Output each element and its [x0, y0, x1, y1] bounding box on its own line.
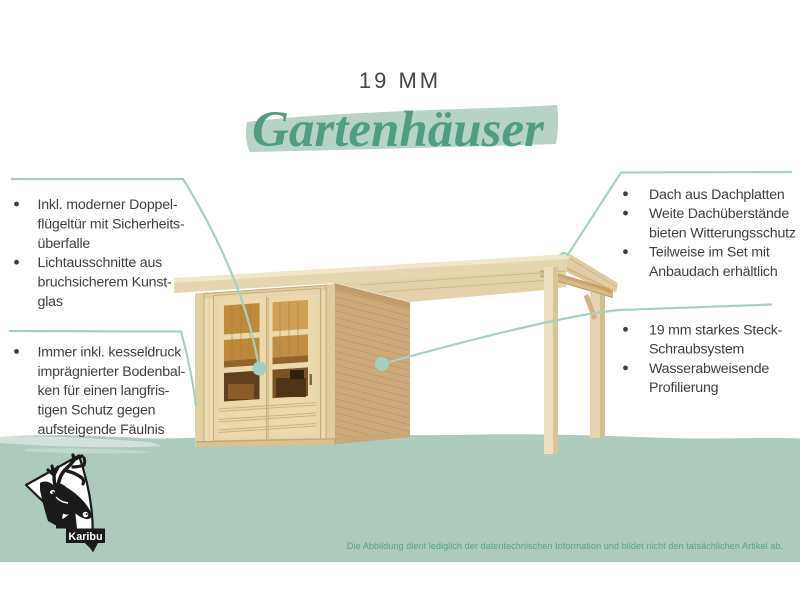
svg-text:Weite Dachüberstände: Weite Dachüberstände: [649, 206, 789, 222]
svg-text:Schraubsystem: Schraubsystem: [649, 342, 744, 358]
svg-text:Anbaudach erhältlich: Anbaudach erhältlich: [649, 264, 778, 280]
svg-text:Karibu: Karibu: [68, 531, 102, 543]
svg-text:Immer inkl. kesseldruck: Immer inkl. kesseldruck: [38, 344, 183, 360]
svg-text:Dach aus Dachplatten: Dach aus Dachplatten: [649, 187, 785, 203]
svg-text:Profilierung: Profilierung: [649, 380, 718, 396]
svg-text:aufsteigende Fäulnis: aufsteigende Fäulnis: [38, 422, 165, 438]
svg-text:tigen Schutz gegen: tigen Schutz gegen: [38, 403, 156, 419]
svg-text:Lichtausschnitte aus: Lichtausschnitte aus: [38, 255, 163, 271]
svg-text:bruchsicherem Kunst-: bruchsicherem Kunst-: [38, 275, 172, 291]
svg-text:flügeltür mit Sicherheits-: flügeltür mit Sicherheits-: [38, 216, 185, 232]
svg-text:19 MM: 19 MM: [359, 68, 441, 93]
svg-text:überfalle: überfalle: [38, 236, 91, 252]
svg-text:imprägnierter Bodenbal-: imprägnierter Bodenbal-: [38, 364, 186, 380]
svg-text:Inkl. moderner Doppel-: Inkl. moderner Doppel-: [38, 197, 178, 213]
svg-text:Die Abbildung dient lediglich: Die Abbildung dient lediglich der datent…: [347, 541, 783, 551]
svg-text:19 mm starkes Steck-: 19 mm starkes Steck-: [649, 322, 783, 338]
svg-text:bieten Witterungsschutz: bieten Witterungsschutz: [649, 225, 796, 241]
svg-text:Gartenhäuser: Gartenhäuser: [252, 102, 545, 158]
svg-text:ken für einen langfris-: ken für einen langfris-: [38, 383, 170, 399]
svg-text:glas: glas: [38, 294, 63, 310]
svg-text:Wasserabweisende: Wasserabweisende: [649, 361, 769, 377]
svg-text:Teilweise im Set mit: Teilweise im Set mit: [649, 245, 770, 261]
